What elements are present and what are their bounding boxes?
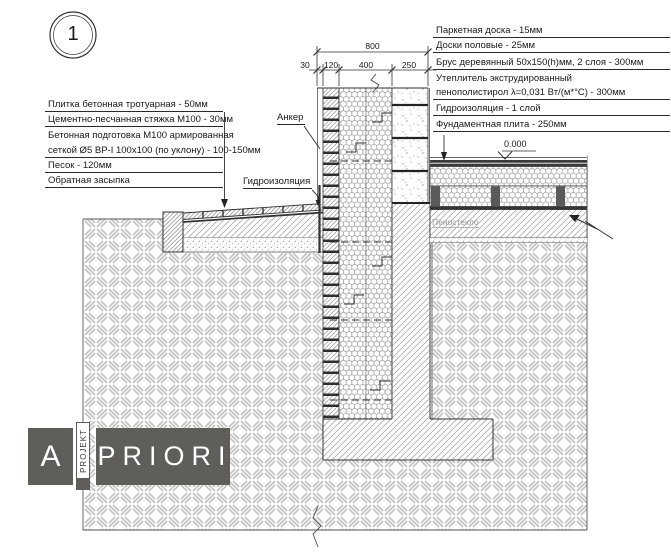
detail-number: 1 bbox=[63, 23, 83, 46]
dimension-seg-250: 250 bbox=[399, 60, 419, 70]
annotation-insulation-line2: пенополистирол λ=0,031 Вт/(м*°С) - 300мм bbox=[433, 85, 670, 100]
footing bbox=[323, 419, 493, 460]
annotation-backfill: Обратная засыпка bbox=[45, 173, 223, 188]
brick-facing bbox=[323, 88, 339, 419]
foundation-wall bbox=[392, 203, 430, 419]
left-annotation-block: Плитка бетонная тротуарная - 50мм Цемент… bbox=[45, 97, 223, 188]
foundation-detail-sheet: 1 Плитка бетонная тротуарная - 50мм Цеме… bbox=[0, 0, 671, 556]
dimension-overall: 800 bbox=[350, 41, 395, 51]
annotation-screed: Цементно-песчанная стяжка М100 - 30мм bbox=[45, 112, 223, 127]
floor-assembly bbox=[430, 155, 587, 243]
annotation-parquet: Паркетная доска - 15мм bbox=[433, 23, 670, 38]
anchor-callout: Анкер bbox=[277, 112, 305, 125]
foam-glass-label: Пеностекло bbox=[432, 217, 479, 228]
wall-insulation bbox=[339, 88, 392, 419]
right-annotation-block: Паркетная доска - 15мм Доски половые - 2… bbox=[433, 23, 670, 132]
annotation-concrete-prep-line2: сеткой Ø5 ВР-I 100x100 (по уклону) - 100… bbox=[45, 142, 223, 158]
annotation-floor-boards: Доски половые - 25мм bbox=[433, 38, 670, 53]
annotation-waterproofing-layer: Гидроизоляция - 1 слой bbox=[433, 100, 670, 116]
floor-waterproofing bbox=[430, 207, 587, 210]
dimension-seg-30: 30 bbox=[295, 60, 315, 70]
pavement-assembly bbox=[163, 202, 323, 252]
annotation-paving-tile: Плитка бетонная тротуарная - 50мм bbox=[45, 97, 223, 112]
annotation-insulation-line1: Утеплитель экструдированный bbox=[433, 70, 670, 85]
wall-assembly bbox=[317, 74, 430, 419]
waterproofing-callout: Гидроизоляция bbox=[243, 176, 312, 189]
annotation-timber: Брус деревянный 50x150(h)мм, 2 слоя - 30… bbox=[433, 53, 670, 70]
level-value: 0.000 bbox=[504, 139, 527, 149]
annotation-sand: Песок - 120мм bbox=[45, 158, 223, 173]
dimension-seg-120: 120 bbox=[321, 60, 341, 70]
dimension-seg-400: 400 bbox=[354, 60, 378, 70]
annotation-concrete-prep-line1: Бетонная подготовка М100 армированная bbox=[45, 127, 223, 142]
annotation-foundation-plate: Фундаментная плита - 250мм bbox=[433, 116, 670, 132]
